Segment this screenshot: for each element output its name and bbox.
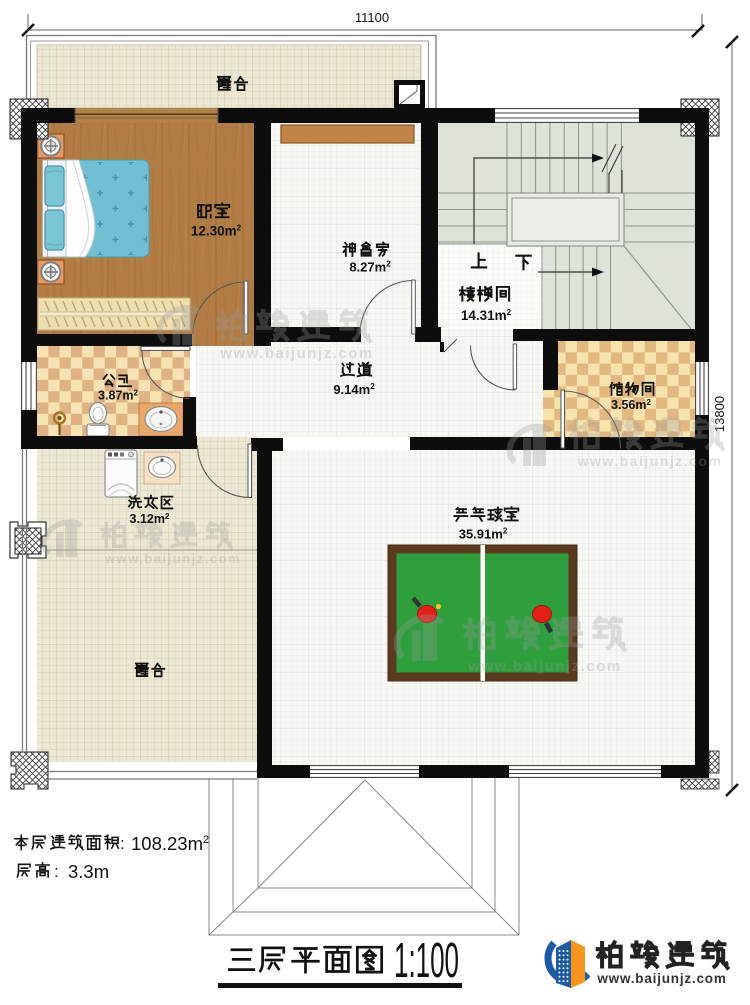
svg-text:12.30m2: 12.30m2 — [191, 224, 242, 239]
svg-text:14.31m2: 14.31m2 — [461, 308, 512, 323]
svg-text:www.baijunjz.com: www.baijunjz.com — [467, 658, 621, 675]
svg-text:35.91m2: 35.91m2 — [459, 527, 508, 542]
svg-text:8.27m2: 8.27m2 — [349, 260, 391, 275]
svg-text:3.3m: 3.3m — [68, 861, 109, 882]
svg-text:9.14m2: 9.14m2 — [333, 382, 375, 397]
svg-text:3.87m2: 3.87m2 — [98, 389, 138, 403]
svg-text:1:100: 1:100 — [394, 935, 459, 989]
svg-text:www.baijunjz.com: www.baijunjz.com — [596, 971, 726, 986]
svg-text:3.56m2: 3.56m2 — [611, 398, 651, 412]
svg-text:3.12m2: 3.12m2 — [130, 512, 170, 526]
svg-text:108.23m2: 108.23m2 — [131, 833, 209, 854]
svg-text:11100: 11100 — [355, 10, 389, 25]
svg-text:www.baijunjz.com: www.baijunjz.com — [577, 453, 723, 469]
svg-text::: : — [54, 862, 59, 881]
svg-text:www.baijunjz.com: www.baijunjz.com — [219, 345, 373, 362]
svg-text:www.baijunjz.com: www.baijunjz.com — [104, 551, 241, 566]
svg-text::: : — [120, 834, 125, 853]
